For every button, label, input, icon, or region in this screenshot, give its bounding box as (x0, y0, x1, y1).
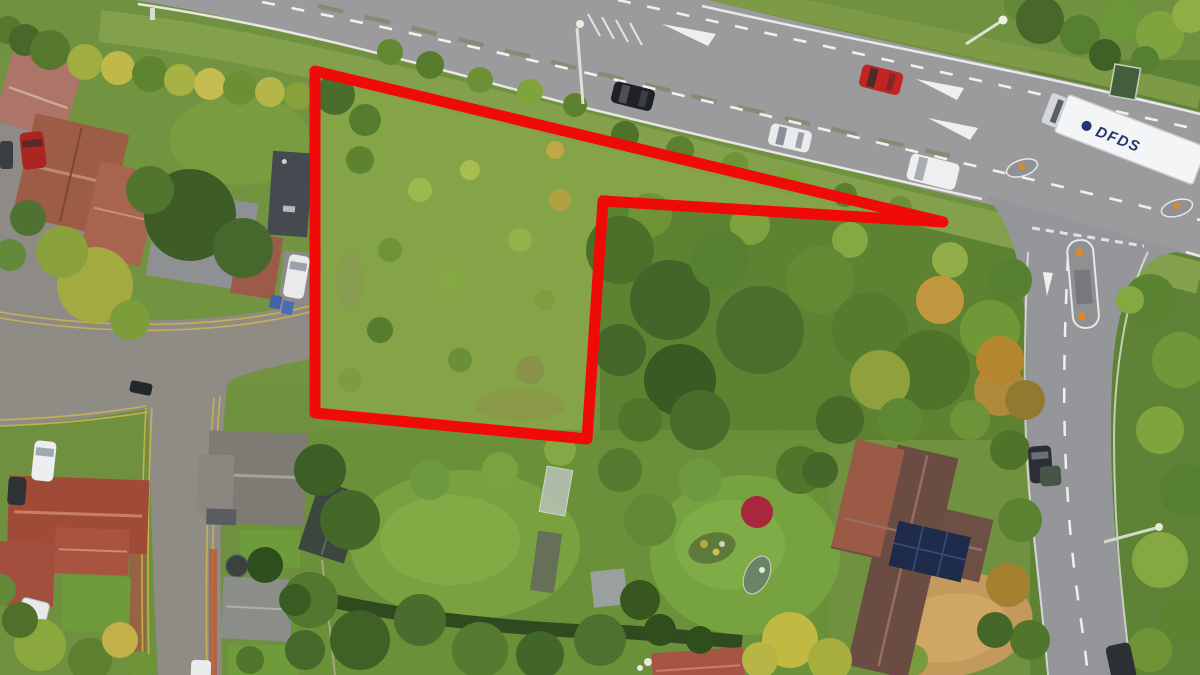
house-roof-gray-south (196, 430, 307, 528)
car-white-street (31, 440, 57, 482)
garden-furniture (644, 658, 652, 666)
red-maple-tree (741, 496, 773, 528)
car-dark-street (7, 476, 27, 505)
car-red-driveway (19, 131, 47, 170)
road-sign-back (1109, 64, 1140, 100)
outbuilding-dark (267, 151, 313, 238)
car-green-side-road (1039, 465, 1061, 486)
aerial-photo-canvas: DFDS (0, 0, 1200, 675)
car-dark-driveway (0, 141, 13, 169)
marker-post (150, 8, 155, 20)
orange-fence (209, 549, 217, 675)
garden-pool (226, 555, 248, 577)
car-white-street-bottom (190, 660, 211, 675)
aerial-photograph: DFDS (0, 0, 1200, 675)
